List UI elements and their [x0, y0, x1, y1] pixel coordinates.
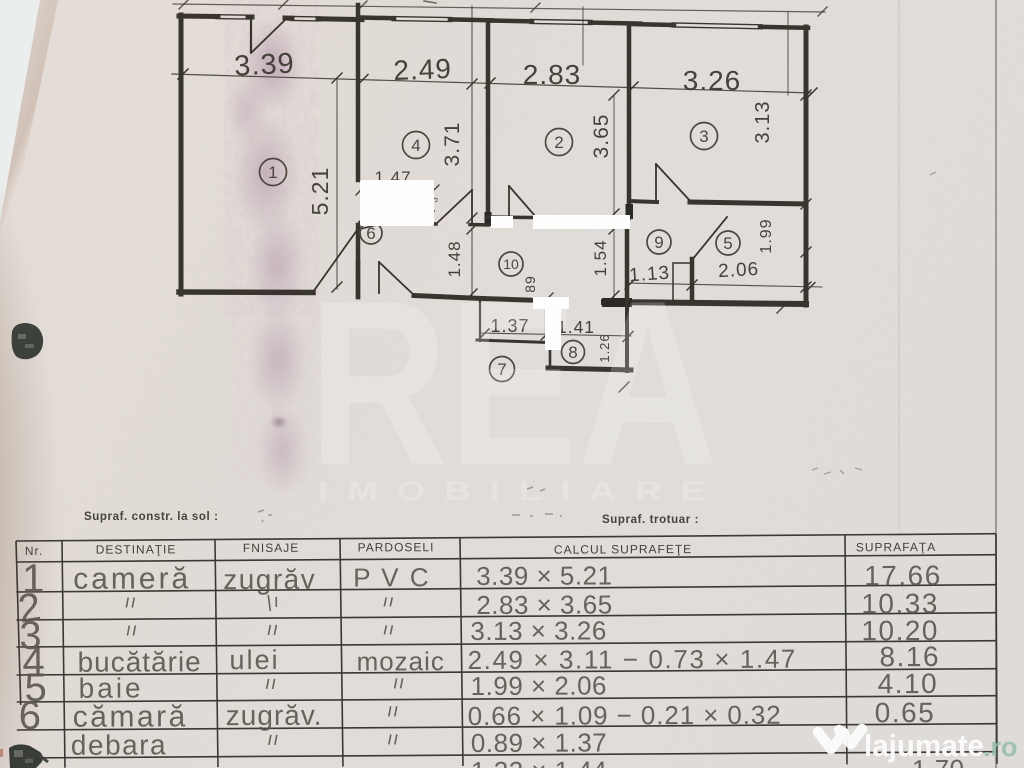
svg-text:1.70: 1.70: [912, 754, 965, 768]
svg-text:2.83: 2.83: [523, 59, 582, 90]
svg-text:3.39: 3.39: [234, 47, 296, 82]
svg-text:7: 7: [497, 360, 506, 379]
svg-text:DESTINAŢIE: DESTINAŢIE: [96, 542, 177, 556]
svg-text:6: 6: [19, 694, 43, 738]
svg-text:debara: debara: [71, 729, 167, 760]
svg-text:cameră: cameră: [73, 562, 191, 596]
svg-text:1.54: 1.54: [591, 239, 610, 276]
svg-text:0.65: 0.65: [875, 697, 936, 728]
svg-text:baie: baie: [79, 672, 144, 703]
svg-text:1.99: 1.99: [758, 218, 775, 253]
svg-text:89: 89: [522, 275, 538, 293]
svg-text:10: 10: [503, 256, 519, 272]
svg-text:1.48: 1.48: [445, 240, 464, 277]
svg-text:1.41: 1.41: [557, 317, 595, 337]
svg-text:4.10: 4.10: [878, 668, 939, 699]
svg-text:zugrăv: zugrăv: [223, 564, 316, 595]
svg-text:mozaic: mozaic: [356, 646, 444, 676]
svg-text:1.22 × 1.44: 1.22 × 1.44: [471, 755, 607, 768]
svg-text:ulei: ulei: [229, 645, 279, 675]
svg-text:P V C: P V C: [353, 562, 431, 592]
svg-text:3.13 × 3.26: 3.13 × 3.26: [470, 615, 606, 646]
svg-text:Supraf. constr. la sol :: Supraf. constr. la sol :: [84, 511, 219, 523]
svg-text:3.65: 3.65: [590, 114, 613, 159]
svg-text:9: 9: [654, 233, 663, 252]
svg-text:3.71: 3.71: [441, 122, 464, 167]
svg-text:2: 2: [554, 133, 563, 152]
svg-text:17.66: 17.66: [864, 560, 942, 591]
svg-text:Nr.: Nr.: [25, 544, 43, 558]
svg-text:1.37: 1.37: [490, 316, 529, 336]
svg-text:3.13: 3.13: [752, 101, 774, 144]
svg-text:PARDOSELI: PARDOSELI: [358, 540, 435, 554]
svg-text:5: 5: [723, 234, 732, 253]
svg-text:3: 3: [699, 127, 708, 146]
svg-text:1: 1: [268, 163, 277, 182]
svg-text:0.66 × 1.09 − 0.21 × 0.32: 0.66 × 1.09 − 0.21 × 0.32: [468, 700, 782, 731]
svg-text:0.89 × 1.37: 0.89 × 1.37: [471, 727, 607, 758]
svg-text:2.49: 2.49: [393, 53, 453, 86]
svg-text:5.21: 5.21: [307, 167, 333, 216]
svg-text:2.06: 2.06: [718, 259, 760, 282]
svg-text:CALCUL SUPRAFEŢE: CALCUL SUPRAFEŢE: [554, 542, 692, 557]
svg-text:8: 8: [568, 343, 577, 362]
svg-text:SUPRAFAŢA: SUPRAFAŢA: [856, 540, 936, 554]
svg-text:3.26: 3.26: [683, 65, 742, 96]
svg-text:Supraf. trotuar :: Supraf. trotuar :: [602, 514, 699, 526]
svg-text:4: 4: [411, 136, 420, 155]
svg-text:zugrăv.: zugrăv.: [226, 700, 323, 731]
svg-text:1.99 × 2.06: 1.99 × 2.06: [471, 670, 607, 701]
svg-text:3.39 × 5.21: 3.39 × 5.21: [476, 560, 612, 591]
svg-text:1.26: 1.26: [597, 333, 612, 362]
svg-text:FNISAJE: FNISAJE: [243, 541, 299, 555]
svg-text:6: 6: [366, 224, 375, 243]
svg-text:1.13: 1.13: [628, 263, 670, 287]
